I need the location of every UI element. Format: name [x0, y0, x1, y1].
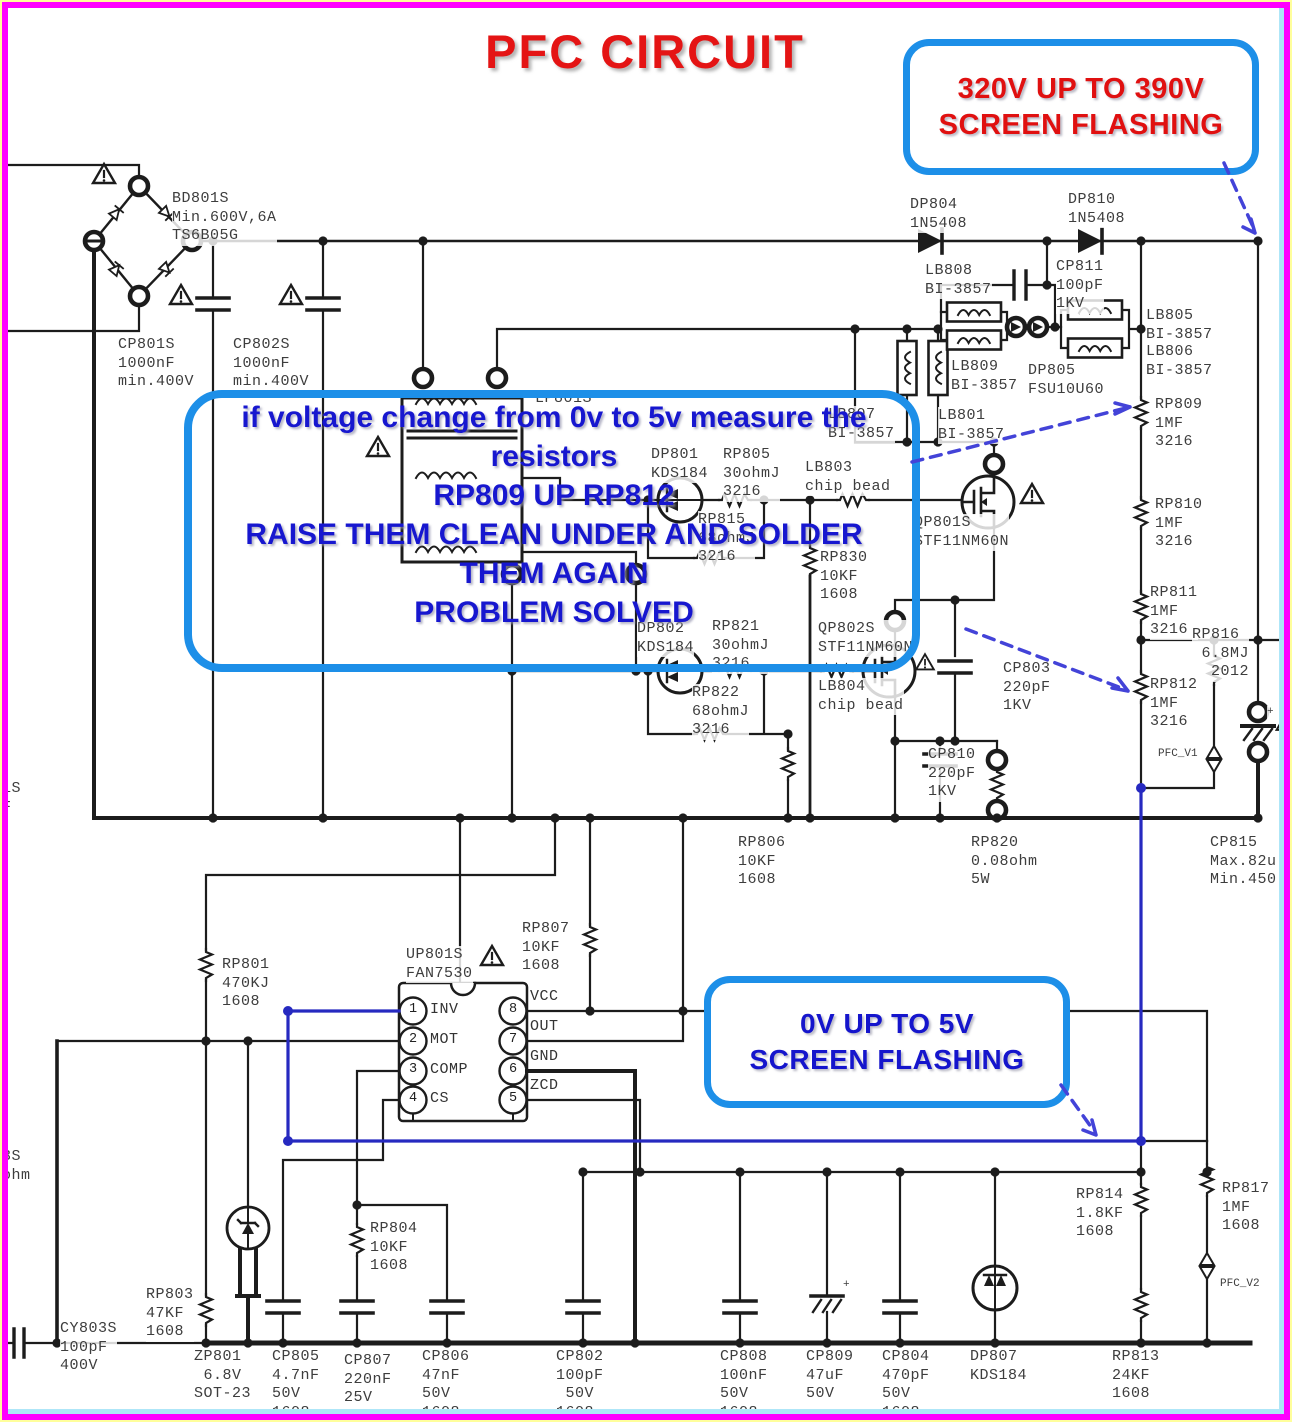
cap-cp804 [884, 1301, 916, 1313]
pfc-v1-marker [1207, 746, 1221, 772]
resistor-rp816 [1208, 653, 1220, 685]
net-comp [357, 1071, 399, 1205]
diode-dp802 [658, 649, 702, 693]
diode-dp807 [973, 1266, 1017, 1310]
diode-dp801 [658, 478, 702, 522]
resistor-rp822 [694, 728, 726, 740]
resistor-rp805 [719, 494, 751, 506]
schematic-page: BD801S Min.600V,6A TS6B05GCP801S 1000nF … [0, 0, 1292, 1422]
bead-lb804 [821, 665, 853, 677]
bridge-rectifier [0, 164, 201, 331]
net-zcd [527, 1100, 1141, 1172]
resistor-rp830 [804, 545, 816, 577]
resistor-rp807 [584, 924, 596, 956]
inductor-lb801 [929, 341, 948, 395]
circuit-diagram [0, 0, 1292, 1422]
pfc-v2-marker [1200, 1253, 1214, 1279]
mosfet-qp802s [863, 528, 994, 818]
zener-zp801 [227, 1041, 269, 1343]
inductor-lb805 [1068, 301, 1122, 320]
cap-cp802 [567, 1301, 599, 1313]
inductor-lb806 [1068, 339, 1122, 358]
callout-320v-text: 320V UP TO 390V SCREEN FLASHING [939, 71, 1224, 143]
diode-dp804 [918, 229, 942, 253]
resistor-rp806 [782, 748, 794, 780]
cap-cp806 [431, 1301, 463, 1313]
page-title: PFC CIRCUIT [440, 24, 850, 79]
resistor-rp803 [200, 1294, 212, 1326]
callout-320v-screen-flashing: 320V UP TO 390V SCREEN FLASHING [903, 39, 1259, 175]
cap-cp805 [267, 1301, 299, 1313]
net-out [527, 818, 683, 1041]
inductor-lb808b [947, 331, 1001, 350]
resistor-rp810 [1135, 497, 1147, 529]
net-cs [283, 1100, 399, 1301]
cap-cp811 [1014, 271, 1026, 299]
resistor-rp812 [1135, 671, 1147, 703]
cap-cp808 [724, 1301, 756, 1313]
cap-cp802s [280, 241, 339, 818]
resistor-rp821 [719, 665, 751, 677]
inductor-lb808a [947, 303, 1001, 322]
inductor-lb809 [898, 341, 917, 395]
callout-0v-screen-flashing: 0V UP TO 5V SCREEN FLASHING [704, 976, 1070, 1108]
divider-chain [1135, 241, 1292, 788]
resistor-rp820 [988, 741, 1006, 819]
ic-up801s [399, 946, 527, 1121]
callout-0v-text: 0V UP TO 5V SCREEN FLASHING [749, 1006, 1024, 1078]
resistor-rp801 [200, 949, 212, 981]
resistor-rp809 [1135, 397, 1147, 429]
resistor-rp813 [1135, 1289, 1147, 1321]
cap-cp809 [811, 1167, 843, 1343]
resistor-rp804 [351, 1224, 363, 1256]
inductor-cluster [850, 241, 1145, 447]
resistor-rp811 [1135, 591, 1147, 623]
cap-cp807 [341, 1301, 373, 1313]
resistor-rp815 [694, 552, 726, 564]
diode-dp810 [1078, 229, 1102, 253]
bead-lb803 [837, 494, 869, 506]
cap-cp815 [1242, 241, 1292, 818]
mosfet-qp801s [962, 442, 1043, 528]
cap-cp801s [170, 241, 229, 818]
cap-cy803s [0, 1329, 205, 1357]
